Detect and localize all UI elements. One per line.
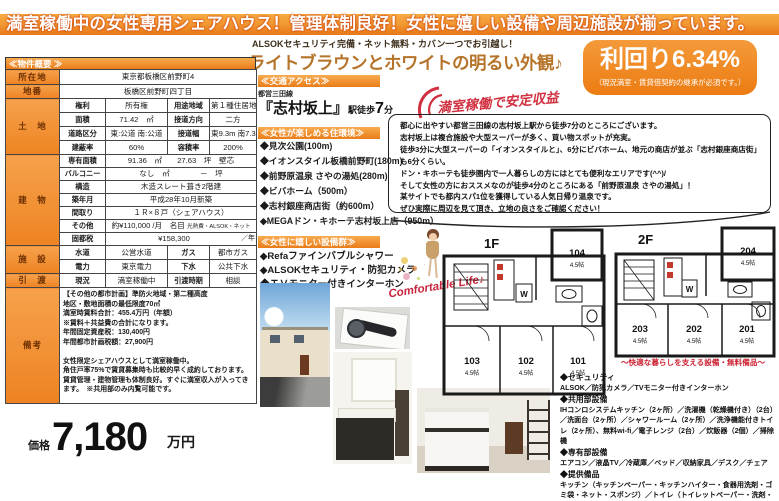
photo-ladder-shelf — [527, 400, 550, 460]
overview-table: 所在地 東京都板橋区前野町4 地番 板橋区前野町四丁目 土 地 権利 所有権 用… — [5, 69, 257, 404]
washer-label: W — [686, 285, 694, 294]
amenities-section-header: ≪女性に嬉しい設備群≫ — [258, 236, 380, 248]
access-section-header: ≪交通アクセス≫ — [258, 75, 380, 87]
photo-bed-frame — [336, 418, 394, 460]
cell-value: 二方 — [210, 113, 257, 127]
table-row: 土 地 権利 所有権 用途地域 第１種住居地域 — [6, 99, 257, 113]
cell-value: 91.36 ㎡ 27.63 坪 壁芯 — [106, 155, 257, 168]
cell-label: 道路区分 — [60, 127, 106, 141]
cell-value: 所有権 — [106, 99, 168, 113]
room-size: 4.5帖 — [687, 337, 701, 345]
cell-label: 現況 — [60, 274, 106, 288]
walk-minutes: 7 — [375, 100, 384, 117]
other-cost-note: 光熱費・ALSOK・ネット — [187, 224, 250, 230]
top-banner: 満室稼働中の女性専用シェアハウス！管理体制良好！女性に嬉しい設備や周辺施設が揃っ… — [0, 14, 779, 35]
room-number: 104 — [569, 248, 586, 259]
cell-label: 面積 — [60, 113, 106, 127]
yield-note: （現況満室・賃貸借契約の継承が必須です。） — [583, 78, 757, 87]
photo-door — [300, 355, 309, 375]
room-size: 4.5帖 — [741, 259, 755, 267]
yield-value: 利回り6.34% — [583, 42, 757, 78]
cell-value: 第１種住居地域 — [210, 99, 257, 113]
room-number: 102 — [518, 356, 534, 367]
pitch-text: 都心に出やすい都営三田線の志村坂上駅から徒歩7分のところにございます。 志村坂上… — [400, 120, 768, 215]
cell-label: ガス — [168, 246, 210, 260]
room-number: 101 — [570, 356, 587, 367]
stable-income-stamp: 満室稼働で安定収益 — [436, 84, 587, 117]
cell-label: その他 — [60, 220, 106, 233]
cell-label: 固都税 — [60, 233, 106, 246]
room-interior-photo — [333, 352, 412, 464]
walk-suffix: 分 — [384, 105, 393, 115]
cell-label: 下水 — [168, 260, 210, 274]
address-value: 東京都板橋区前野町4 — [60, 70, 257, 85]
exterior-headline: ライトブラウンとホワイトの明るい外観♪ — [248, 50, 562, 75]
cell-label: 用途地域 — [168, 99, 210, 113]
cell-value: 木造スレート葺き2階建 — [106, 181, 257, 194]
cell-label: 専有面積 — [60, 155, 106, 168]
photo-shelf — [395, 390, 409, 456]
cell-label: バルコニー — [60, 168, 106, 181]
photo-shower-face — [347, 319, 366, 338]
room-number: 203 — [632, 324, 648, 335]
facility-group-label: 施 設 — [6, 246, 60, 274]
equipment-section-body: ALSOK／防犯カメラ／TVモニター付きインターホン — [560, 383, 778, 393]
equipment-section-body: エアコン／液晶TV／冷蔵庫／ベッド／収納家具／デスク／チェア — [560, 458, 778, 468]
photo-window — [351, 358, 397, 402]
cell-value: 60% — [106, 141, 168, 155]
building-exterior-photo — [260, 283, 330, 407]
floorplan-2f: 2F W 204 4.5帖 203 4.5帖 202 4.5帖 201 4.5帖 — [610, 224, 779, 360]
floorplan-caption: 〜快適な暮らしを支える設備・無料備品〜 — [608, 357, 778, 368]
cell-value: 公営水道 — [106, 246, 168, 260]
cell-label: 引渡時期 — [168, 274, 210, 288]
station-name: 『志村坂上』 — [258, 100, 348, 117]
cell-label: 水道 — [60, 246, 106, 260]
price-label: 価格 — [28, 437, 50, 453]
cell-label: 築年月 — [60, 194, 106, 207]
cell-label: 建蔽率 — [60, 141, 106, 155]
room-number: 202 — [686, 324, 702, 335]
floor-label-2f: 2F — [638, 232, 653, 247]
table-row: 引 渡 現況 満室稼働中 引渡時期 相談 — [6, 274, 257, 288]
remarks-group-label: 備考 — [6, 288, 60, 404]
photo-road — [260, 377, 330, 407]
photo-bed-stripe — [425, 428, 489, 432]
cell-value: なし ㎡ － 坪 — [106, 168, 257, 181]
cell-value: 東京電力 — [106, 260, 168, 274]
tax-value: ¥158,300 — [158, 234, 190, 243]
walk-prefix: 駅徒歩 — [348, 105, 375, 115]
cell-value: ¥158,300 ／年 — [106, 233, 257, 246]
room-size: 4.5帖 — [570, 261, 584, 269]
yield-badge: 利回り6.34% （現況満室・賃貸借契約の継承が必須です。） — [583, 40, 757, 95]
equipment-lists: ◆セキュリティ ALSOK／防犯カメラ／TVモニター付きインターホン ◆共用部設… — [560, 372, 778, 501]
photo-bed — [425, 408, 489, 471]
row-label: 地番 — [6, 85, 60, 99]
flyer-page: 満室稼働中の女性専用シェアハウス！管理体制良好！女性に嬉しい設備や周辺施設が揃っ… — [0, 0, 779, 501]
alsok-feature-line: ALSOKセキュリティ完備・ネット無料・カバン一つでお引越し！ — [252, 37, 452, 50]
other-cost: 約¥110,000 /月 名目 — [112, 221, 185, 230]
photo-window — [294, 335, 304, 343]
room-size: 4.5帖 — [740, 337, 754, 345]
cell-value: 満室稼働中 — [106, 274, 168, 288]
cell-value: 都市ガス — [210, 246, 257, 260]
photo-window — [270, 335, 280, 343]
tax-unit: ／年 — [241, 235, 255, 242]
bedroom-photo — [417, 388, 550, 473]
cell-label: 接道幅 — [168, 127, 210, 141]
table-row: 所在地 東京都板橋区前野町4 — [6, 70, 257, 85]
floor-label-1f: 1F — [484, 236, 499, 251]
station-line: 『志村坂上』駅徒歩7分 — [258, 97, 393, 118]
room-number: 201 — [739, 324, 756, 335]
cell-label: 権利 — [60, 99, 106, 113]
shower-head-photo — [335, 307, 410, 349]
cell-value: １Ｒ×８戸（シェアハウス） — [106, 207, 257, 220]
cell-label: 接道方向 — [168, 113, 210, 127]
table-row: 地番 板橋区前野町四丁目 — [6, 85, 257, 99]
lot-value: 板橋区前野町四丁目 — [60, 85, 257, 99]
price-unit: 万円 — [167, 432, 195, 452]
cell-value: 200% — [210, 141, 257, 155]
room-number: 103 — [464, 356, 480, 367]
illustration-leg — [428, 258, 432, 276]
cell-label: 容積率 — [168, 141, 210, 155]
land-group-label: 土 地 — [6, 99, 60, 155]
remarks-text: 【その他の都市計画】準防火地域・第二種高度 地区・敷地面積の最低限度70㎡ 満室… — [60, 288, 257, 404]
handover-group-label: 引 渡 — [6, 274, 60, 288]
environment-section-header: ≪女性が楽しめる住環境≫ — [258, 127, 380, 139]
equipment-section-title: ◆専有部設備 — [560, 447, 778, 458]
illustration-bubbles — [401, 257, 408, 264]
washer-label: W — [520, 290, 528, 299]
photo-dresser — [505, 422, 523, 454]
cell-value: 71.42 ㎡ — [106, 113, 168, 127]
cell-value: 東9.3m 南7.39m — [210, 127, 257, 141]
room-size: 4.5帖 — [465, 369, 479, 377]
row-label: 所在地 — [6, 70, 60, 85]
photo-sky — [260, 283, 330, 331]
table-row: 建 物 専有面積 91.36 ㎡ 27.63 坪 壁芯 — [6, 155, 257, 168]
cell-value: 約¥110,000 /月 名目 光熱費・ALSOK・ネット — [106, 220, 257, 233]
price-value: 7,180 — [52, 415, 147, 460]
equipment-section-title: ◆提供備品 — [560, 469, 778, 480]
equipment-section-title: ◆共用部設備 — [560, 394, 778, 405]
cell-value: 東:公道 南:公道 — [106, 127, 168, 141]
cell-label: 構造 — [60, 181, 106, 194]
overview-header: ≪物件概要 ≫ — [5, 57, 256, 69]
table-row: 施 設 水道 公営水道 ガス 都市ガス — [6, 246, 257, 260]
cell-value: 公共下水 — [210, 260, 257, 274]
cell-value: 平成28年10月新築 — [106, 194, 257, 207]
building-group-label: 建 物 — [6, 155, 60, 246]
cell-label: 間取り — [60, 207, 106, 220]
table-row: 備考 【その他の都市計画】準防火地域・第二種高度 地区・敷地面積の最低限度70㎡… — [6, 288, 257, 404]
equipment-section-body: IHコンロシステムキッチン（2ヶ所）／洗濯機（乾燥機付き）（2台）／洗面台（2ヶ… — [560, 405, 778, 446]
equipment-section-title: ◆セキュリティ — [560, 372, 778, 383]
cell-value: 相談 — [210, 274, 257, 288]
room-size: 4.5帖 — [633, 337, 647, 345]
cell-label: 電力 — [60, 260, 106, 274]
room-number: 204 — [740, 246, 757, 257]
equipment-section-body: キッチン（キッチンペーパー・キッチンハイター・食器用洗剤・ゴミ袋・ネット・スポン… — [560, 480, 778, 501]
room-size: 4.5帖 — [519, 369, 533, 377]
